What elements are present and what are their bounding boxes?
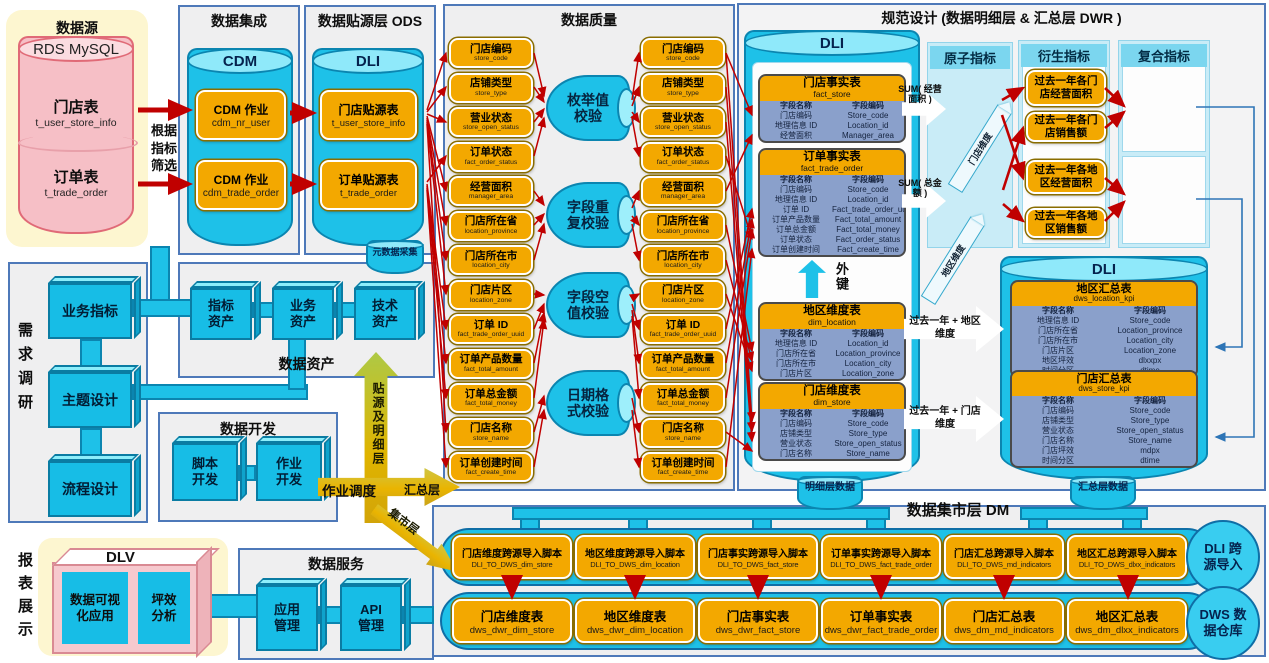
derived-indicator: 过去一年各地区销售额: [1026, 208, 1106, 238]
fact-trade-order-cn: 订单事实表: [760, 151, 904, 164]
fact-store-code: fact_store: [760, 90, 904, 99]
quality-field-code: manager_area: [469, 193, 513, 200]
service-title: 数据服务: [238, 554, 434, 574]
flow-up-label: 贴源及明细层: [370, 382, 387, 466]
quality-field: 门店片区location_zone: [449, 280, 533, 310]
derived-indicator: 过去一年各门店经营面积: [1026, 70, 1106, 106]
dm-table: 门店维度表dws_dwr_dim_store: [452, 599, 572, 643]
quality-field: 门店所在市location_city: [641, 245, 725, 275]
quality-field: 门店名称store_name: [641, 418, 725, 448]
table-row: 订单产品数量Fact_total_amount: [760, 215, 904, 225]
pingxiao-block: 坪效分析: [138, 572, 190, 644]
dws-location-kpi-rows: 地理信息 IDStore_code门店所在省Location_province门…: [1012, 316, 1196, 376]
ods-dli-name: DLI: [356, 53, 380, 70]
table-cell: 时间分区: [1012, 456, 1104, 466]
dev-cube: 脚本开发: [172, 443, 238, 501]
dm-script-code: DLI_TO_DWS_dim_store: [472, 560, 553, 569]
table-row: 经营面积Manager_area: [760, 131, 904, 141]
table-cell: Manager_area: [832, 131, 904, 141]
quality-field-code: fact_total_amount: [464, 366, 518, 373]
table-cell: Store_name: [1104, 436, 1196, 446]
quality-field-label: 门店片区: [470, 285, 512, 296]
quality-field-label: 店铺类型: [470, 78, 512, 89]
asset-cube: 指标资产: [190, 288, 252, 340]
dm-table-label: 订单事实表: [850, 606, 913, 625]
table-cell: Location_province: [832, 349, 904, 359]
table-cell: Store_code: [832, 419, 904, 429]
fact-trade-order-rows: 门店编码Store_code地理信息 IDLocation_id订单 IDFac…: [760, 185, 904, 255]
flow-summary-label: 汇总层: [404, 481, 440, 498]
table-row: 门店所在省Location_province: [760, 349, 904, 359]
cdm-label: CDM: [187, 48, 293, 74]
table-row: 门店名称Store_name: [760, 449, 904, 459]
ods-store-cn: 门店贴源表: [338, 101, 398, 118]
ods-order-table: 订单贴源表 t_trade_order: [320, 160, 417, 210]
dm-table: 地区维度表dws_dwr_dim_location: [575, 599, 695, 643]
quality-field-label: 门店所在市: [465, 251, 518, 262]
quality-field: 门店所在市location_city: [449, 245, 533, 275]
cdm-job-order-code: cdm_trade_order: [203, 188, 279, 199]
detail-data-cylinder: 明细层数据: [797, 476, 863, 510]
quality-field-code: store_code: [474, 55, 508, 62]
pingxiao-label: 坪效分析: [150, 592, 178, 625]
field-code-header: 字段编码: [832, 101, 904, 111]
quality-field: 门店编码store_code: [449, 38, 533, 68]
quality-field-label: 经营面积: [470, 182, 512, 193]
filter-label: 根据指标筛选: [149, 122, 179, 175]
field-header-row: 字段名称字段编码: [760, 409, 904, 419]
dm-table-code: dws_dwr_dim_store: [470, 625, 554, 636]
table-cell: 门店坪效: [1012, 446, 1104, 456]
quality-field: 订单状态fact_order_status: [641, 142, 725, 172]
table-cell: 地区坪效: [1012, 356, 1104, 366]
dim-store-code: dim_store: [760, 398, 904, 407]
dim-store-head: 门店维度表 dim_store: [760, 384, 904, 409]
fact-store-head: 门店事实表 fact_store: [760, 76, 904, 101]
order-table-label: 订单表 t_trade_order: [20, 166, 132, 199]
quality-field-code: store_open_status: [463, 124, 519, 131]
cdm-job-store: CDM 作业 cdm_nr_user: [196, 90, 286, 140]
fact-store-rows: 门店编码Store_code地理信息 IDLocation_id经营面积Mana…: [760, 111, 904, 141]
table-row: 时间分区dtime: [1012, 456, 1196, 466]
survey-cube-label: 业务指标: [62, 303, 118, 320]
assets-title: 数据资产: [178, 354, 435, 374]
table-cell: 门店所在市: [760, 359, 832, 369]
table-cell: 地理信息 ID: [760, 195, 832, 205]
table-row: 地理信息 IDLocation_id: [760, 195, 904, 205]
field-name-header: 字段名称: [1012, 306, 1104, 316]
survey-cube: 流程设计: [48, 461, 132, 517]
rds-divider: [18, 134, 138, 152]
dm-script-label: 地区维度跨源导入脚本: [585, 545, 685, 560]
field-header-row: 字段名称字段编码: [760, 329, 904, 339]
dws-store-kpi-rows: 门店编码Store_code店铺类型Store_type营业状态Store_op…: [1012, 406, 1196, 466]
table-cell: Store_name: [832, 449, 904, 459]
asset-cube-label: 技术资产: [370, 298, 400, 329]
quality-field-label: 门店所在市: [657, 251, 710, 262]
asset-cube-label: 指标资产: [206, 298, 236, 329]
table-cell: 门店所在市: [1012, 336, 1104, 346]
quality-field-label: 门店编码: [662, 44, 704, 55]
table-row: 门店片区Location_zone: [760, 369, 904, 379]
quality-field-code: fact_total_money: [657, 400, 709, 407]
quality-field-label: 订单 ID: [474, 320, 508, 331]
service-cubes: 应用管理API管理: [256, 585, 402, 651]
cdm-job-store-cn: CDM 作业: [214, 101, 269, 118]
cdm-cylinder: CDM: [187, 48, 293, 246]
quality-field-code: fact_trade_order_uuid: [650, 331, 717, 338]
composite-inner-2: [1122, 156, 1206, 244]
survey-cube-label: 主题设计: [62, 392, 118, 409]
asset-cubes: 指标资产业务资产技术资产: [190, 288, 416, 340]
table-row: 地区坪效dlxxpx: [1012, 356, 1196, 366]
dev-cube-label: 脚本开发: [189, 456, 221, 487]
table-cell: 门店名称: [760, 449, 832, 459]
dwr-dli-label: DLI: [744, 30, 920, 56]
service-cube-label: 应用管理: [272, 602, 302, 633]
table-cell: Fact_trade_order_uuid: [832, 205, 904, 215]
table-cell: Location_id: [832, 339, 904, 349]
quality-field-code: manager_area: [661, 193, 705, 200]
dim-store-rows: 门店编码Store_code店铺类型Store_type营业状态Store_op…: [760, 419, 904, 459]
dm-script-code: DLI_TO_DWS_fact_store: [718, 560, 799, 569]
quality-field: 订单创建时间fact_create_time: [641, 452, 725, 482]
field-header-row: 字段名称字段编码: [1012, 396, 1196, 406]
asset-cube-label: 业务资产: [288, 298, 318, 329]
dev-cube-label: 作业开发: [273, 456, 305, 487]
table-cell: 订单总金额: [760, 225, 832, 235]
table-cell: 营业状态: [760, 439, 832, 449]
quality-field: 营业状态store_open_status: [641, 107, 725, 137]
dm-script-label: 门店事实跨源导入脚本: [708, 545, 808, 560]
dm-script: 订单事实跨源导入脚本DLI_TO_DWS_fact_trade_order: [821, 535, 941, 579]
dataviz-app-label: 数据可视化应用: [67, 592, 123, 625]
check-enum-label: 枚举值校验: [565, 92, 611, 124]
table-row: 营业状态Store_open_status: [760, 439, 904, 449]
dws-store-kpi-head: 门店汇总表 dws_store_kpi: [1012, 372, 1196, 396]
atomic-header: 原子指标: [930, 46, 1010, 69]
integration-title: 数据集成: [178, 11, 300, 31]
table-row: 门店编码Store_code: [760, 419, 904, 429]
field-code-header: 字段编码: [1104, 306, 1196, 316]
metadata-label: 元数据采集: [368, 242, 422, 257]
table-row: 门店片区Location_zone: [1012, 346, 1196, 356]
dm-table-code: dws_dwr_dim_location: [587, 625, 683, 636]
design-title: 规范设计 (数据明细层 & 汇总层 DWR ): [737, 8, 1266, 28]
derived-indicator-label: 过去一年各门店经营面积: [1028, 75, 1104, 100]
quality-field-code: store_type: [667, 90, 699, 97]
table-cell: Store_type: [1104, 416, 1196, 426]
cdm-job-order: CDM 作业 cdm_trade_order: [196, 160, 286, 210]
table-cell: 订单 ID: [760, 205, 832, 215]
check-dup-cylinder: 字段重复校验: [546, 182, 630, 248]
field-header-row: 字段名称字段编码: [760, 101, 904, 111]
table-cell: 地理信息 ID: [760, 339, 832, 349]
dws-dli-name: DLI: [1092, 261, 1116, 278]
dm-script: 门店汇总跨源导入脚本DLI_TO_DWS_md_indicators: [944, 535, 1064, 579]
dm-script-code: DLI_TO_DWS_fact_trade_order: [830, 560, 932, 569]
field-name-header: 字段名称: [760, 101, 832, 111]
order-table-cn: 订单表: [20, 166, 132, 187]
dm-script: 地区汇总跨源导入脚本DLI_TO_DWS_dlxx_indicators: [1067, 535, 1187, 579]
flow-schedule-label: 作业调度: [322, 480, 376, 500]
table-row: 订单创建时间Fact_create_time: [760, 245, 904, 255]
table-cell: 订单产品数量: [760, 215, 832, 225]
dim-location-table: 地区维度表 dim_location 字段名称字段编码 地理信息 IDLocat…: [758, 302, 906, 381]
cdm-name: CDM: [223, 53, 257, 70]
check-date-label: 日期格式校验: [565, 387, 611, 419]
table-cell: 门店编码: [1012, 406, 1104, 416]
dim-location-rows: 地理信息 IDLocation_id门店所在省Location_province…: [760, 339, 904, 379]
ods-order-code: t_trade_order: [340, 188, 397, 199]
quality-field-label: 经营面积: [662, 182, 704, 193]
dlv-label: DLV: [106, 549, 135, 566]
quality-field-label: 订单创建时间: [652, 458, 715, 469]
asset-cube: 技术资产: [354, 288, 416, 340]
store-table-code: t_user_store_info: [20, 117, 132, 129]
dm-table-code: dws_dm_dlxx_indicators: [1075, 625, 1179, 636]
dm-table: 地区汇总表dws_dm_dlxx_indicators: [1067, 599, 1187, 643]
summary-data-cylinder: 汇总层数据: [1070, 476, 1136, 510]
dim-location-code: dim_location: [760, 318, 904, 327]
derived-indicator-label: 过去一年各地区经营面积: [1028, 164, 1104, 189]
table-row: 门店所在市Location_city: [1012, 336, 1196, 346]
quality-field-label: 订单总金额: [657, 389, 710, 400]
table-row: 门店编码Store_code: [760, 111, 904, 121]
dm-table-code: dws_dwr_fact_store: [716, 625, 800, 636]
quality-field-label: 门店所在省: [657, 216, 710, 227]
dm-script: 地区维度跨源导入脚本DLI_TO_DWS_dim_location: [575, 535, 695, 579]
ods-store-code: t_user_store_info: [332, 118, 405, 129]
order-table-code: t_trade_order: [20, 187, 132, 199]
quality-field: 订单产品数量fact_total_amount: [449, 349, 533, 379]
table-cell: Location_id: [832, 195, 904, 205]
quality-field-label: 订单 ID: [666, 320, 700, 331]
quality-field-code: location_province: [465, 228, 518, 235]
derived-indicator: 过去一年各地区经营面积: [1026, 160, 1106, 194]
table-cell: 门店编码: [760, 185, 832, 195]
table-row: 地理信息 IDLocation_id: [760, 339, 904, 349]
quality-field-code: fact_order_status: [465, 159, 518, 166]
dm-table-code: dws_dwr_fact_trade_order: [825, 625, 937, 636]
quality-field: 门店所在省location_province: [449, 211, 533, 241]
table-row: 门店所在省Location_province: [1012, 326, 1196, 336]
table-cell: 门店片区: [1012, 346, 1104, 356]
dm-table-label: 地区汇总表: [1096, 606, 1159, 625]
quality-field-label: 订单状态: [662, 147, 704, 158]
table-cell: 订单创建时间: [760, 245, 832, 255]
check-dup-label: 字段重复校验: [565, 199, 611, 231]
dm-script-label: 订单事实跨源导入脚本: [831, 545, 931, 560]
dev-cube: 作业开发: [256, 443, 322, 501]
quality-field-label: 门店名称: [470, 423, 512, 434]
ods-order-cn: 订单贴源表: [338, 171, 398, 188]
table-cell: Store_code: [1104, 406, 1196, 416]
dws-location-kpi-head: 地区汇总表 dws_location_kpi: [1012, 282, 1196, 306]
fact-trade-order-head: 订单事实表 fact_trade_order: [760, 150, 904, 175]
dm-table: 门店汇总表dws_dm_md_indicators: [944, 599, 1064, 643]
quality-field-code: store_name: [473, 435, 509, 442]
table-cell: 门店编码: [760, 419, 832, 429]
quality-field-label: 店铺类型: [662, 78, 704, 89]
table-cell: 经营面积: [760, 131, 832, 141]
table-cell: Location_city: [832, 359, 904, 369]
table-cell: 门店编码: [760, 111, 832, 121]
quality-field: 订单总金额fact_total_money: [641, 383, 725, 413]
table-cell: Store_code: [1104, 316, 1196, 326]
quality-field-label: 门店名称: [662, 423, 704, 434]
dataviz-app-block: 数据可视化应用: [62, 572, 128, 644]
quality-field-code: fact_order_status: [657, 159, 710, 166]
quality-field: 门店编码store_code: [641, 38, 725, 68]
quality-field: 订单 IDfact_trade_order_uuid: [449, 314, 533, 344]
dim-store-cn: 门店维度表: [760, 385, 904, 398]
dm-script-code: DLI_TO_DWS_md_indicators: [957, 560, 1051, 569]
quality-field-code: fact_total_money: [465, 400, 517, 407]
table-cell: 门店片区: [760, 369, 832, 379]
quality-field-code: store_open_status: [655, 124, 711, 131]
table-cell: 门店所在省: [760, 349, 832, 359]
dws-location-kpi-table: 地区汇总表 dws_location_kpi 字段名称字段编码 地理信息 IDS…: [1010, 280, 1198, 378]
ods-store-table: 门店贴源表 t_user_store_info: [320, 90, 417, 140]
quality-field-label: 订单总金额: [465, 389, 518, 400]
survey-title: 需求调研: [14, 322, 35, 418]
table-row: 订单 IDFact_trade_order_uuid: [760, 205, 904, 215]
dm-script-row: 门店维度跨源导入脚本DLI_TO_DWS_dim_store地区维度跨源导入脚本…: [452, 535, 1187, 579]
field-name-header: 字段名称: [760, 175, 832, 185]
service-cube: API管理: [340, 585, 402, 651]
quality-field: 经营面积manager_area: [449, 176, 533, 206]
quality-field-code: location_city: [664, 262, 701, 269]
derived-header: 衍生指标: [1021, 44, 1107, 67]
rds-label: RDS MySQL: [18, 36, 134, 62]
ods-title: 数据贴源层 ODS: [304, 11, 436, 31]
dim-store-table: 门店维度表 dim_store 字段名称字段编码 门店编码Store_code店…: [758, 382, 906, 461]
table-row: 店铺类型Store_type: [1012, 416, 1196, 426]
quality-field-code: store_name: [665, 435, 701, 442]
fact-store-table: 门店事实表 fact_store 字段名称字段编码 门店编码Store_code…: [758, 74, 906, 143]
table-row: 店铺类型Store_type: [760, 429, 904, 439]
quality-field-code: fact_trade_order_uuid: [458, 331, 525, 338]
composite-header: 复合指标: [1121, 44, 1207, 67]
dm-script-label: 门店汇总跨源导入脚本: [954, 545, 1054, 560]
agg-location-label: 过去一年 + 地区维度: [908, 315, 982, 341]
table-cell: 门店所在省: [1012, 326, 1104, 336]
quality-field-label: 营业状态: [470, 113, 512, 124]
dim-location-cn: 地区维度表: [760, 305, 904, 318]
dm-script: 门店维度跨源导入脚本DLI_TO_DWS_dim_store: [452, 535, 572, 579]
table-row: 订单状态Fact_order_status: [760, 235, 904, 245]
derived-indicator-label: 过去一年各门店销售额: [1028, 114, 1104, 139]
quality-field-code: location_zone: [470, 297, 512, 304]
table-row: 门店编码Store_code: [760, 185, 904, 195]
architecture-diagram: 数据源 数据集成 数据贴源层 ODS 数据质量 规范设计 (数据明细层 & 汇总…: [0, 0, 1269, 663]
quality-field-label: 营业状态: [662, 113, 704, 124]
table-cell: Fact_total_amount: [832, 215, 904, 225]
dli-import-circle: DLI 跨源导入: [1186, 520, 1260, 594]
table-cell: Fact_total_money: [832, 225, 904, 235]
table-cell: Location_city: [1104, 336, 1196, 346]
table-cell: Store_code: [832, 185, 904, 195]
dm-table-label: 门店汇总表: [973, 606, 1036, 625]
rds-name: RDS MySQL: [33, 41, 119, 58]
quality-field-code: store_type: [475, 90, 507, 97]
summary-data-label: 汇总层数据: [1072, 478, 1134, 493]
table-row: 门店所在市Location_city: [760, 359, 904, 369]
rds-cylinder: RDS MySQL 门店表 t_user_store_info 订单表 t_tr…: [18, 36, 134, 234]
quality-field: 门店所在省location_province: [641, 211, 725, 241]
dlv-side-face: [196, 546, 212, 658]
quality-field-label: 订单产品数量: [652, 354, 715, 365]
dws-store-kpi-code: dws_store_kpi: [1012, 385, 1196, 394]
table-row: 门店坪效mdpx: [1012, 446, 1196, 456]
quality-field-label: 门店片区: [662, 285, 704, 296]
field-code-header: 字段编码: [832, 329, 904, 339]
pipe-theme: [132, 384, 308, 400]
service-cube: 应用管理: [256, 585, 318, 651]
agg-store-label: 过去一年 + 门店维度: [908, 405, 982, 431]
field-name-header: 字段名称: [760, 329, 832, 339]
quality-field-code: location_zone: [662, 297, 704, 304]
table-row: 地理信息 IDStore_code: [1012, 316, 1196, 326]
cdm-job-order-cn: CDM 作业: [214, 171, 269, 188]
quality-field-code: fact_create_time: [658, 469, 708, 476]
check-null-cylinder: 字段空值校验: [546, 272, 630, 338]
quality-field: 店铺类型store_type: [641, 73, 725, 103]
table-cell: 地理信息 ID: [760, 121, 832, 131]
quality-field-label: 门店所在省: [465, 216, 518, 227]
quality-field: 营业状态store_open_status: [449, 107, 533, 137]
check-enum-cylinder: 枚举值校验: [546, 75, 630, 141]
report-title: 报表展示: [14, 552, 35, 644]
quality-field-code: store_code: [666, 55, 700, 62]
sum-area-label: SUM( 经营面积 ): [898, 84, 942, 105]
check-null-label: 字段空值校验: [565, 289, 611, 321]
survey-cubes: 业务指标主题设计流程设计: [48, 283, 132, 517]
quality-field-code: location_province: [657, 228, 710, 235]
dlv-top-face: [52, 548, 220, 566]
detail-data-label: 明细层数据: [799, 478, 861, 493]
dim-location-head: 地区维度表 dim_location: [760, 304, 904, 329]
derived-items: 过去一年各门店经营面积过去一年各门店销售额过去一年各地区经营面积过去一年各地区销…: [1026, 70, 1106, 238]
dws-store-kpi-table: 门店汇总表 dws_store_kpi 字段名称字段编码 门店编码Store_c…: [1010, 370, 1198, 468]
field-name-header: 字段名称: [760, 409, 832, 419]
quality-field-code: fact_total_amount: [656, 366, 710, 373]
field-name-header: 字段名称: [1012, 396, 1104, 406]
table-row: 地理信息 IDLocation_id: [760, 121, 904, 131]
table-cell: Fact_create_time: [832, 245, 904, 255]
dm-table-code: dws_dm_md_indicators: [954, 625, 1054, 636]
table-cell: Location_zone: [832, 369, 904, 379]
dm-table-row: 门店维度表dws_dwr_dim_store地区维度表dws_dwr_dim_l…: [452, 599, 1187, 643]
survey-cube: 业务指标: [48, 283, 132, 339]
table-cell: Location_province: [1104, 326, 1196, 336]
dm-script: 门店事实跨源导入脚本DLI_TO_DWS_fact_store: [698, 535, 818, 579]
table-cell: 店铺类型: [760, 429, 832, 439]
table-cell: Store_code: [832, 111, 904, 121]
quality-field-label: 订单产品数量: [460, 354, 523, 365]
check-date-cylinder: 日期格式校验: [546, 370, 630, 436]
table-cell: mdpx: [1104, 446, 1196, 456]
quality-field: 经营面积manager_area: [641, 176, 725, 206]
fact-trade-order-code: fact_trade_order: [760, 164, 904, 173]
cdm-job-store-code: cdm_nr_user: [212, 118, 270, 129]
foreign-key-label: 外键: [832, 262, 851, 292]
table-cell: Store_open_status: [1104, 426, 1196, 436]
pipe-biz-to-asset: [132, 299, 192, 317]
metadata-cylinder: 元数据采集: [366, 240, 424, 274]
survey-cube: 主题设计: [48, 372, 132, 428]
